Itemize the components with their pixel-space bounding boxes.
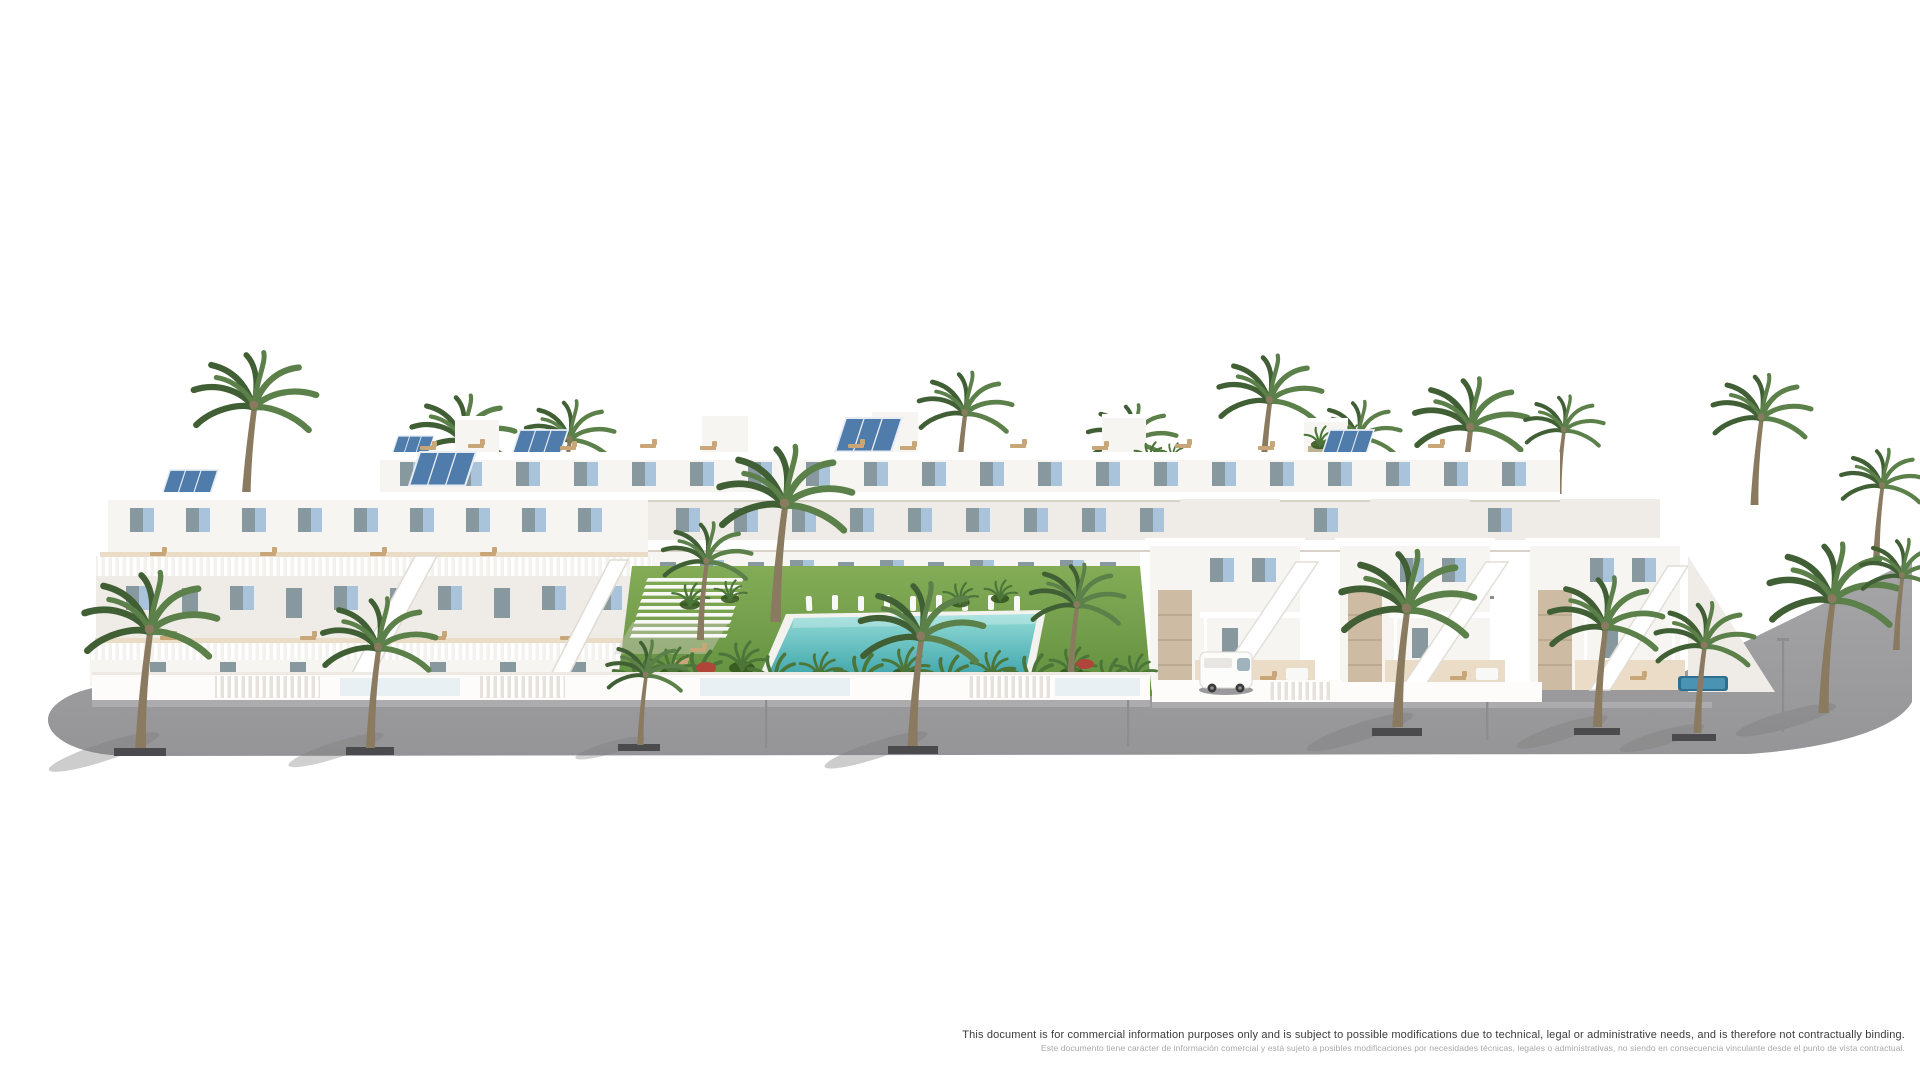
architectural-render: This document is for commercial informat… [0, 0, 1920, 1080]
slat-fence [215, 676, 320, 698]
left-upper-windows [130, 508, 602, 532]
glass-fence [1055, 678, 1140, 696]
disclaimer-line-es: Este documento tiene carácter de informa… [962, 1042, 1905, 1054]
slat-fence [968, 676, 1053, 698]
red-flowers [1076, 659, 1094, 669]
slat-fence [480, 676, 565, 698]
render-scene [0, 0, 1920, 1080]
parked-van [1199, 652, 1253, 695]
legal-disclaimer: This document is for commercial informat… [962, 1028, 1905, 1054]
glass-fence [340, 678, 460, 696]
solar-panel [409, 452, 476, 486]
slat-fence [1270, 682, 1330, 700]
disclaimer-line-en: This document is for commercial informat… [962, 1028, 1905, 1042]
wall-shadow [92, 700, 1150, 707]
front-wall [92, 672, 1542, 702]
solar-panel [835, 418, 902, 452]
glass-fence [700, 678, 850, 696]
